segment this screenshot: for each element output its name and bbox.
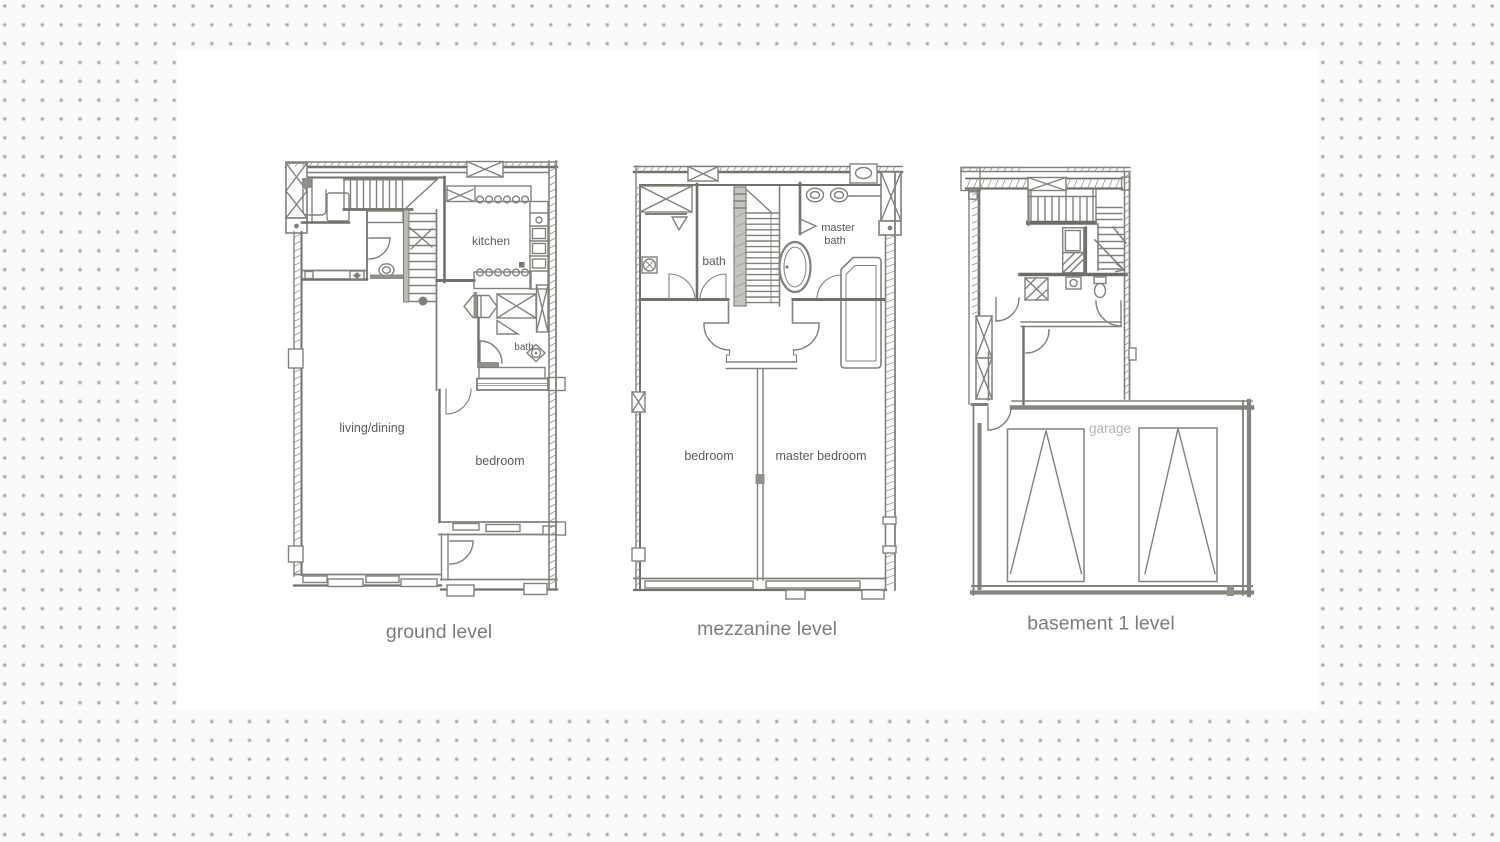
svg-text:kitchen: kitchen <box>472 234 510 248</box>
svg-text:bath: bath <box>514 342 533 353</box>
svg-text:bath: bath <box>824 235 845 247</box>
svg-text:basement 1 level: basement 1 level <box>1027 613 1174 635</box>
svg-text:bedroom: bedroom <box>684 449 733 463</box>
svg-text:ground level: ground level <box>386 621 492 643</box>
svg-text:living/dining: living/dining <box>339 421 404 435</box>
svg-text:garage: garage <box>1089 421 1131 436</box>
svg-text:master bedroom: master bedroom <box>775 449 866 463</box>
svg-text:bedroom: bedroom <box>475 454 524 468</box>
svg-text:master: master <box>821 222 855 234</box>
svg-text:mezzanine level: mezzanine level <box>697 618 837 640</box>
svg-text:bath: bath <box>702 254 725 268</box>
